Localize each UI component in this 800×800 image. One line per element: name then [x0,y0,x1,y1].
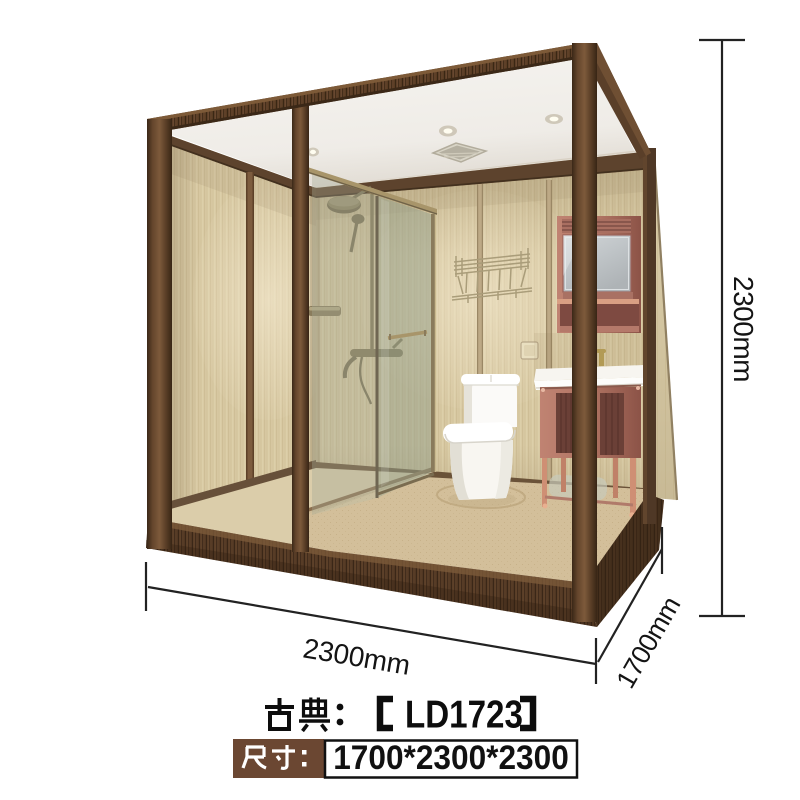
svg-text:1700*2300*2300: 1700*2300*2300 [333,738,569,776]
svg-text:2300mm: 2300mm [728,276,759,382]
svg-text:LD1723: LD1723 [405,692,523,736]
